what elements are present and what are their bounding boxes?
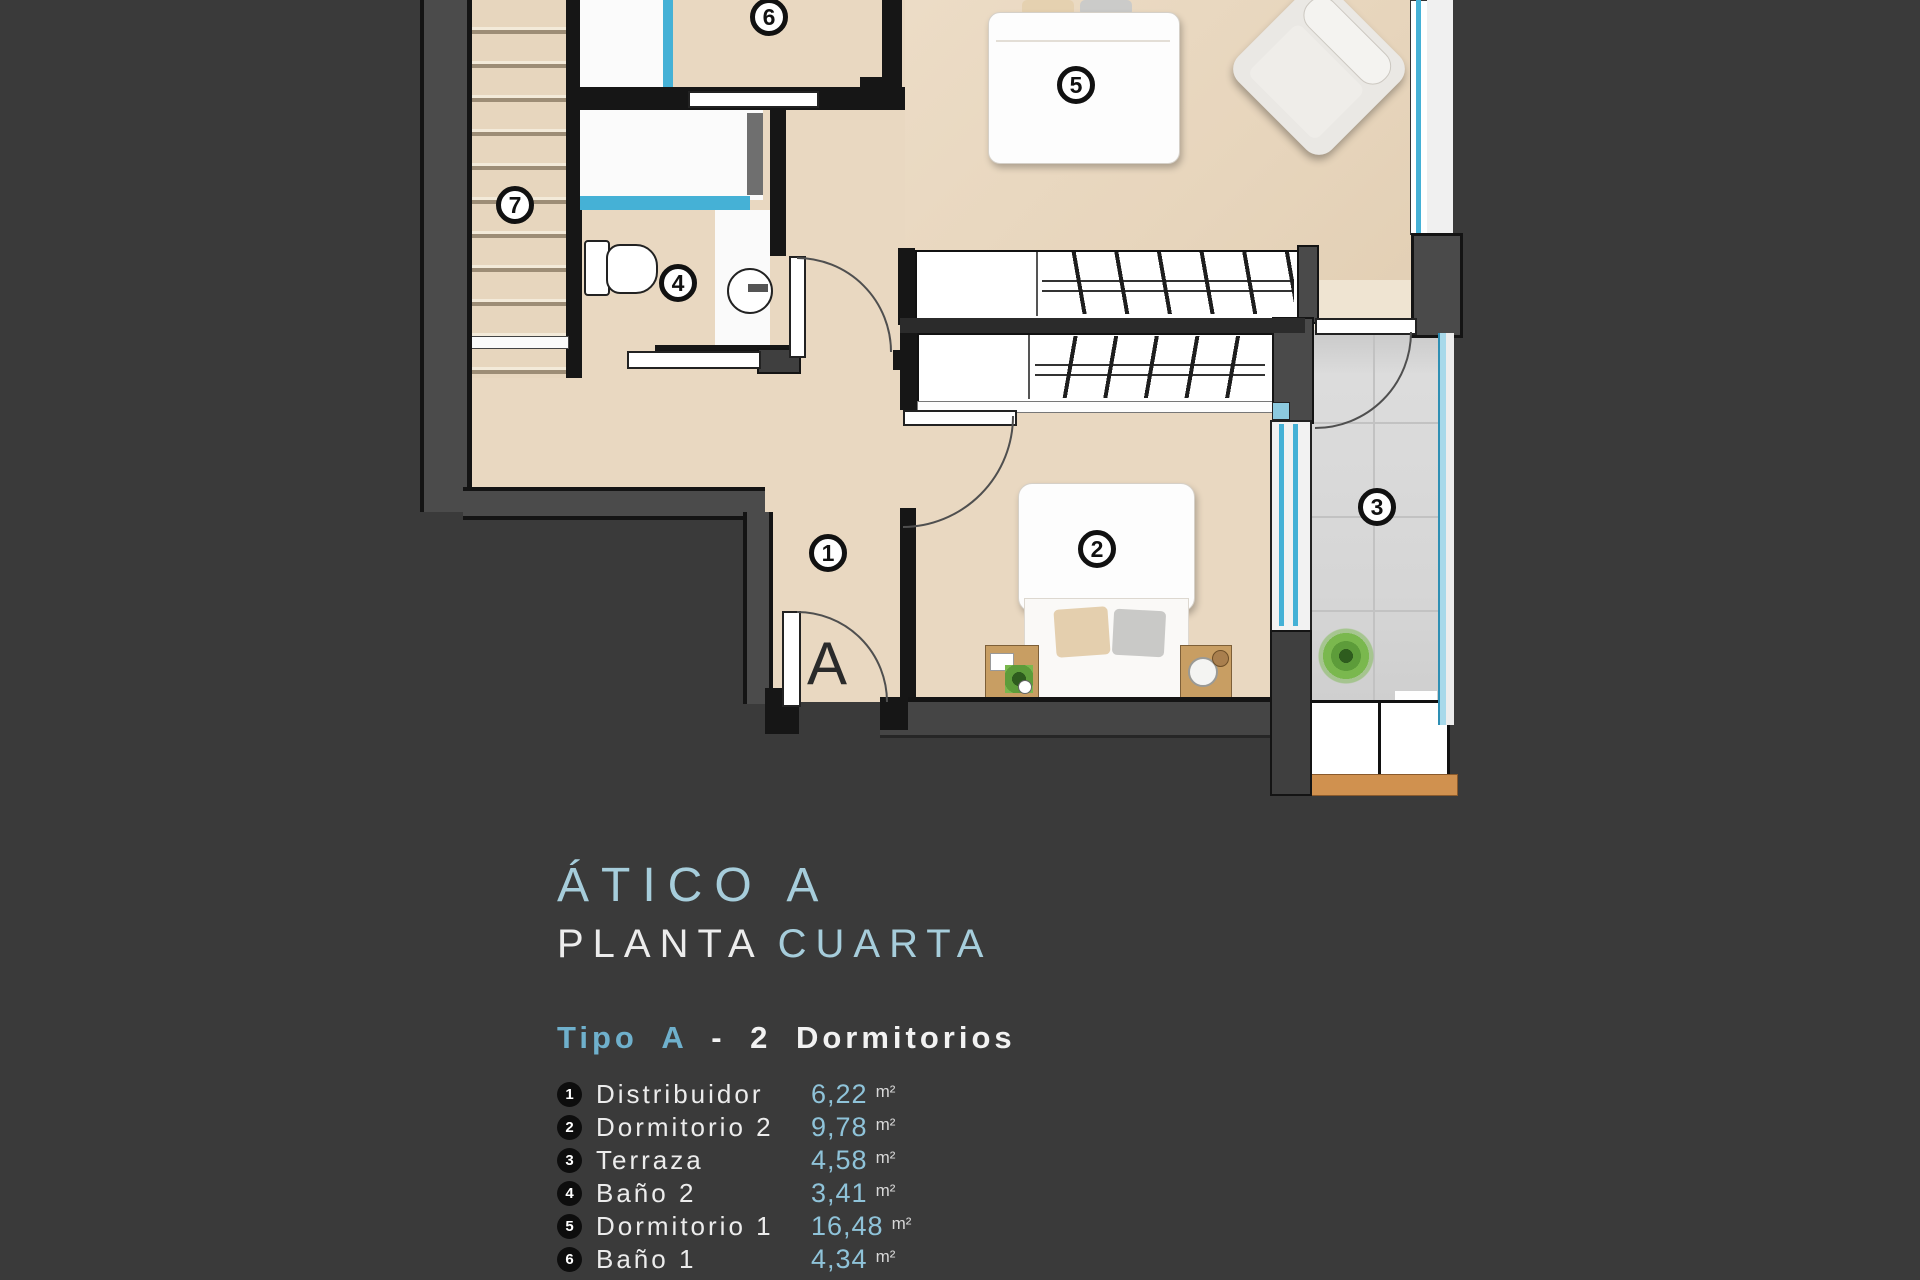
door-bano2	[627, 351, 761, 369]
legend-room-name: Baño 1	[596, 1244, 811, 1275]
room-badge-escalera: 7	[496, 186, 534, 224]
wardrobe-upper-divider	[1036, 252, 1038, 316]
door-terrace	[1315, 318, 1417, 335]
nightstand-clock-icon	[1018, 680, 1032, 694]
wall-l-foot	[860, 77, 902, 104]
wardrobe-upper-hangers	[1044, 252, 1294, 314]
shower-pillar	[747, 113, 763, 195]
shower-glass-bano-2	[580, 196, 750, 210]
wall-corridor-bedroom2	[900, 508, 916, 704]
room-badge-dormitorio1: 5	[1057, 66, 1095, 104]
shower-bano-2	[580, 110, 763, 200]
wall-l-vertical	[882, 0, 902, 80]
legend-area-value: 4,34	[811, 1244, 868, 1275]
terrace-wood-deck	[1308, 774, 1458, 796]
type-heading: Tipo A - 2 Dormitorios	[557, 1020, 1016, 1056]
terrace-railing-edge	[1446, 333, 1454, 725]
sliding-door-glass-1	[1279, 424, 1284, 626]
wardrobe-upper-end-wall	[1297, 245, 1319, 324]
legend-row: 7 Escalera 3,75 m²	[557, 1276, 911, 1280]
exterior-wall-bottom	[880, 697, 1272, 738]
type-heading-rest: - 2 Dormitorios	[711, 1020, 1015, 1055]
window-outer-band	[1427, 0, 1453, 233]
legend-row: 2 Dormitorio 2 9,78 m²	[557, 1111, 911, 1144]
wardrobe-lower-left-cap	[900, 333, 917, 410]
legend-room-name: Baño 2	[596, 1178, 811, 1209]
legend-number-badge: 5	[557, 1214, 582, 1239]
legend-row: 3 Terraza 4,58 m²	[557, 1144, 911, 1177]
nightstand-vase-icon	[1212, 650, 1229, 667]
wardrobe-upper-left-cap	[898, 248, 915, 325]
exterior-wall-left	[420, 0, 472, 512]
wall-bano2-right	[770, 110, 786, 256]
door-dormitorio1	[789, 256, 806, 358]
sliding-door-track	[1272, 402, 1290, 420]
toilet-bowl-icon	[606, 244, 658, 294]
exterior-wall-step-h	[463, 487, 765, 520]
legend-number-badge: 4	[557, 1181, 582, 1206]
wall-column-bottom-right	[1270, 630, 1312, 796]
page-subtitle-floor: PLANTACUARTA	[557, 922, 992, 967]
type-heading-blue: Tipo A	[557, 1020, 687, 1055]
sliding-door-glass-2	[1293, 424, 1298, 626]
legend-room-name: Dormitorio 1	[596, 1211, 811, 1242]
wall-between-wardrobes	[900, 318, 1305, 333]
stair-landing-edge	[467, 336, 569, 349]
legend-number-badge: 2	[557, 1115, 582, 1140]
shower-glass-bano-1	[663, 0, 673, 87]
room-badge-distribuidor: 1	[809, 534, 847, 572]
legend-area-value: 4,58	[811, 1145, 868, 1176]
floor-plan-page: 1 2 3 4 5 6 7 A ÁTICO A PLANTACUARTA Tip…	[0, 0, 1920, 1280]
legend-rows: 1 Distribuidor 6,22 m² 2 Dormitorio 2 9,…	[557, 1078, 911, 1280]
shower-bano-1	[580, 0, 670, 87]
wardrobe-lower-hangers	[1037, 336, 1265, 398]
entrance-jamb-right	[880, 697, 908, 730]
page-title: ÁTICO A	[557, 858, 830, 913]
room-badge-bano2: 4	[659, 264, 697, 302]
legend-area-unit: m²	[876, 1115, 896, 1135]
wall-pier-terrace	[1411, 233, 1463, 338]
legend-row: 1 Distribuidor 6,22 m²	[557, 1078, 911, 1111]
legend-area-unit: m²	[876, 1247, 896, 1267]
room-badge-terraza: 3	[1358, 488, 1396, 526]
legend-number-badge: 1	[557, 1082, 582, 1107]
door-hinge-block	[893, 350, 907, 370]
legend-row: 6 Baño 1 4,34 m²	[557, 1243, 911, 1276]
bed2-pillow-beige	[1053, 606, 1110, 658]
legend-area-unit: m²	[876, 1082, 896, 1102]
legend-row: 4 Baño 2 3,41 m²	[557, 1177, 911, 1210]
legend-room-name: Distribuidor	[596, 1079, 811, 1110]
bed1-fold-line	[996, 40, 1170, 42]
legend-area-value: 9,78	[811, 1112, 868, 1143]
legend-area-unit: m²	[876, 1181, 896, 1201]
door-dormitorio2	[903, 410, 1017, 426]
room-badge-dormitorio2: 2	[1078, 530, 1116, 568]
exterior-wall-step-v	[743, 512, 773, 704]
legend-room-name: Terraza	[596, 1145, 811, 1176]
bed2-pillow-gray	[1112, 609, 1166, 658]
subtitle-white: PLANTA	[557, 922, 764, 966]
terrace-unit-left	[1308, 700, 1384, 780]
legend-room-name: Dormitorio 2	[596, 1112, 811, 1143]
door-bano1	[688, 91, 819, 108]
legend-area-unit: m²	[876, 1148, 896, 1168]
entrance-label: A	[796, 632, 858, 696]
legend-area-value: 16,48	[811, 1211, 884, 1242]
sliding-door-terrace	[1270, 420, 1312, 634]
legend-number-badge: 3	[557, 1148, 582, 1173]
legend-row: 5 Dormitorio 1 16,48 m²	[557, 1210, 911, 1243]
sink-tap-icon	[748, 284, 768, 292]
terrace-plant-icon	[1316, 626, 1376, 686]
subtitle-blue: CUARTA	[778, 922, 993, 966]
legend-area-unit: m²	[892, 1214, 912, 1234]
legend-area-value: 3,41	[811, 1178, 868, 1209]
wardrobe-lower-divider	[1028, 335, 1030, 399]
window-glass-core	[1416, 0, 1421, 233]
legend-area-value: 6,22	[811, 1079, 868, 1110]
terrace-sill	[1395, 691, 1437, 700]
legend-number-badge: 6	[557, 1247, 582, 1272]
